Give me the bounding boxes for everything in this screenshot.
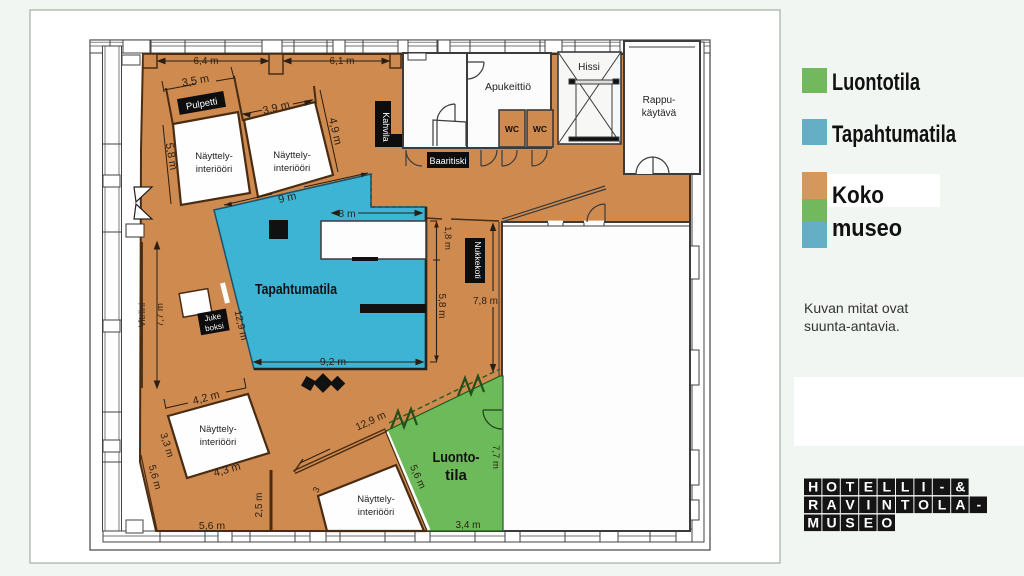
svg-text:museo: museo (832, 215, 902, 242)
svg-text:tila: tila (445, 467, 467, 484)
svg-text:Näyttely-: Näyttely- (199, 424, 236, 435)
svg-text:Hissi: Hissi (578, 62, 600, 73)
svg-text:2,5 m: 2,5 m (254, 492, 265, 517)
svg-text:käytävä: käytävä (642, 108, 677, 119)
svg-text:Apukeittiö: Apukeittiö (485, 81, 531, 93)
svg-text:L: L (883, 479, 892, 495)
svg-text:3,4 m: 3,4 m (455, 520, 480, 531)
svg-text:Näyttely-: Näyttely- (357, 494, 394, 505)
svg-text:interiööri: interiööri (200, 437, 236, 448)
svg-text:L: L (901, 479, 910, 495)
svg-text:Tapahtumatila: Tapahtumatila (255, 282, 338, 298)
svg-text:A: A (827, 497, 837, 513)
svg-text:Rappu-: Rappu- (643, 95, 676, 106)
svg-text:WC: WC (505, 124, 519, 134)
svg-text:7,7 m: 7,7 m (490, 445, 501, 469)
svg-text:I: I (866, 497, 870, 513)
svg-text:6,4 m: 6,4 m (193, 56, 218, 67)
svg-text:Kahvila: Kahvila (381, 112, 391, 142)
svg-text:interiööri: interiööri (274, 163, 310, 174)
svg-text:6,1 m: 6,1 m (329, 56, 354, 67)
svg-text:I: I (922, 479, 926, 495)
svg-text:O: O (918, 497, 929, 513)
svg-text:9,2 m: 9,2 m (320, 356, 347, 368)
svg-text:O: O (826, 479, 837, 495)
svg-text:Näyttely-: Näyttely- (273, 150, 310, 161)
svg-text:-: - (976, 497, 981, 513)
svg-text:O: O (881, 515, 892, 531)
svg-text:suunta-antavia.: suunta-antavia. (804, 318, 900, 334)
svg-text:Tapahtumatila: Tapahtumatila (832, 121, 956, 148)
svg-text:7,8 m: 7,8 m (473, 296, 498, 307)
svg-text:Kuvan mitat ovat: Kuvan mitat ovat (804, 300, 908, 316)
svg-text:Luontotila: Luontotila (832, 69, 920, 96)
svg-text:Koko: Koko (832, 182, 884, 209)
svg-text:Baaritiski: Baaritiski (430, 156, 467, 166)
svg-text:-: - (940, 479, 945, 495)
svg-text:H: H (808, 479, 818, 495)
svg-text:&: & (955, 479, 965, 495)
svg-text:Nukkekoti: Nukkekoti (473, 241, 483, 278)
svg-text:Luonto-: Luonto- (433, 449, 480, 466)
svg-text:E: E (864, 515, 873, 531)
svg-text:7,7 m: 7,7 m (155, 303, 166, 327)
svg-text:interiööri: interiööri (196, 164, 232, 175)
svg-text:N: N (882, 497, 892, 513)
svg-text:R: R (808, 497, 818, 513)
svg-text:S: S (845, 515, 854, 531)
svg-text:5,8 m: 5,8 m (436, 293, 447, 318)
svg-text:interiööri: interiööri (358, 507, 394, 518)
svg-text:WC: WC (533, 124, 547, 134)
svg-text:Vitriini: Vitriini (137, 303, 147, 327)
svg-text:M: M (807, 515, 819, 531)
svg-text:V: V (845, 497, 855, 513)
svg-text:Näyttely-: Näyttely- (195, 151, 232, 162)
svg-text:8 m: 8 m (338, 208, 356, 220)
svg-text:5,6 m: 5,6 m (199, 520, 226, 532)
svg-text:L: L (938, 497, 947, 513)
svg-text:T: T (901, 497, 910, 513)
svg-text:E: E (864, 479, 873, 495)
svg-text:1,8 m: 1,8 m (442, 226, 453, 250)
svg-text:A: A (955, 497, 965, 513)
svg-text:U: U (827, 515, 837, 531)
svg-text:T: T (846, 479, 855, 495)
